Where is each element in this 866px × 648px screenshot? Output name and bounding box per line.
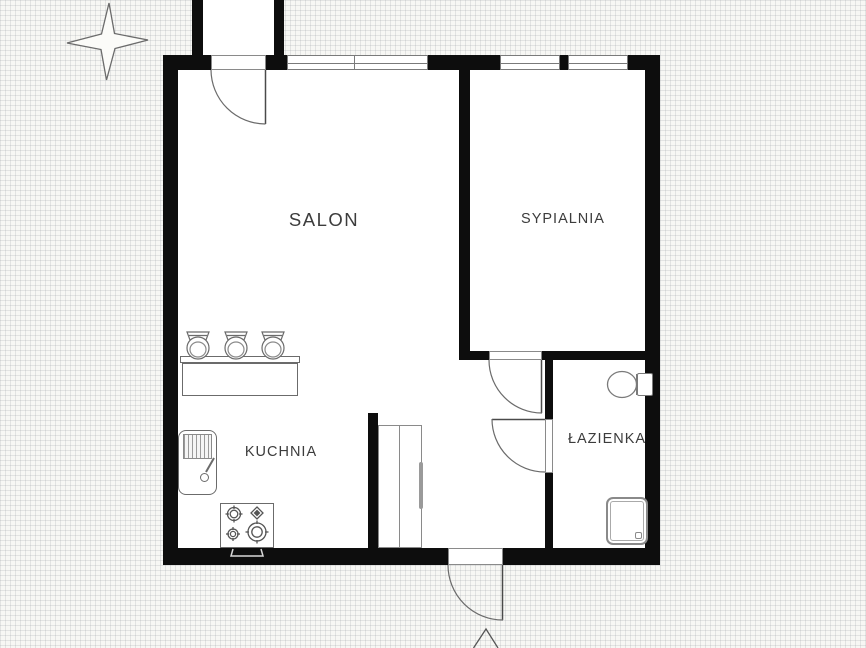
wall-wardrobe-stub	[368, 413, 378, 548]
wardrobe	[378, 425, 422, 548]
vestibule-interior	[203, 0, 274, 55]
room-label-sypialnia: SYPIALNIA	[521, 211, 605, 227]
wall-left	[163, 55, 178, 565]
wall-top-segment	[560, 55, 568, 70]
room-label-lazienka: ŁAZIENKA	[568, 431, 646, 447]
door-opening-entrance-bottom	[448, 548, 503, 565]
wall-lazienka-segment	[545, 356, 553, 419]
wall-salon-sypialnia	[459, 68, 470, 360]
sink-drainboard	[183, 434, 212, 459]
window-mullion	[354, 56, 355, 69]
compass-star-icon	[67, 3, 148, 80]
shower-drain	[635, 532, 642, 539]
gas-stove	[220, 503, 274, 548]
kitchen-counter-body	[182, 363, 298, 396]
sink-faucet	[200, 473, 209, 482]
window-sypialnia-2	[568, 55, 628, 70]
room-label-salon: SALON	[289, 209, 359, 231]
wall-sypialnia-bottom-segment	[459, 351, 489, 360]
shower-tray	[606, 497, 648, 545]
window-sypialnia-1	[500, 55, 560, 70]
wall-lazienka-segment	[545, 473, 553, 548]
kitchen-sink	[178, 430, 217, 495]
wardrobe-divider	[399, 426, 400, 547]
door-opening-sypialnia	[489, 351, 542, 360]
vestibule-wall-left	[192, 0, 203, 55]
room-label-kuchnia: KUCHNIA	[245, 444, 317, 460]
window-pane-line	[569, 63, 627, 64]
door-opening-entrance-top	[211, 55, 266, 70]
door-entrance-bottom	[448, 565, 503, 620]
wall-top-segment	[628, 55, 660, 70]
wall-sypialnia-bottom-segment	[542, 351, 645, 360]
wall-bottom-segment	[503, 548, 660, 565]
door-opening-lazienka	[545, 419, 553, 473]
window-pane-line	[288, 63, 427, 64]
vestibule-wall-right	[274, 0, 284, 55]
entrance-arrow-icon	[474, 629, 499, 648]
wall-top-segment	[266, 55, 287, 70]
window-salon	[287, 55, 428, 70]
floor-plan: SALON SYPIALNIA KUCHNIA ŁAZIENKA	[0, 0, 866, 648]
toilet-tank	[637, 373, 653, 396]
wall-bottom-segment	[163, 548, 448, 565]
wall-top-segment	[163, 55, 211, 70]
wardrobe-handle	[419, 462, 423, 509]
window-pane-line	[501, 63, 559, 64]
wall-right	[645, 55, 660, 565]
kitchen-counter-top	[180, 356, 300, 363]
